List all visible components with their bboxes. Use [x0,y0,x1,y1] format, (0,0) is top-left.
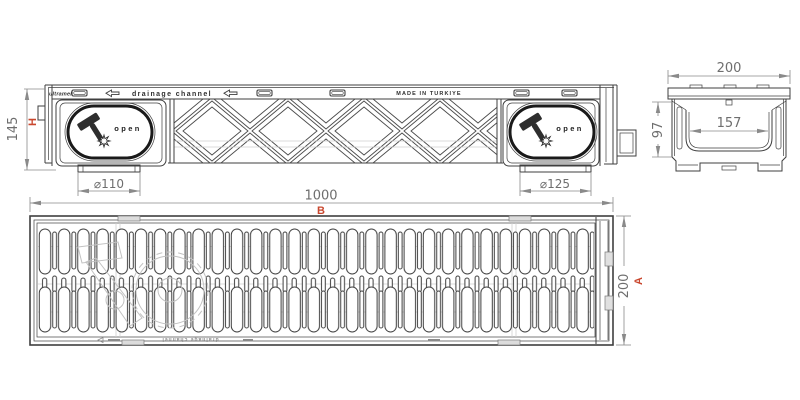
dim-plan-width-letter: A [633,277,645,285]
footer-drainage-label: drainage channel [161,336,218,342]
brand-logo-text: ultramele [49,92,75,98]
right-end-cap [600,85,636,166]
arrow-left-icon [106,90,119,97]
side-elevation-view: ultramele drainage channel MADE IN TURKI… [6,85,636,196]
rail-slot-icon [514,90,529,96]
section-top-flange [668,85,790,99]
burst-icon [540,135,552,147]
end-cap-clip [605,296,613,310]
end-cap-clip [605,252,613,266]
dimension-plan-width: 200 A [616,216,645,345]
technical-drawing-canvas: ultramele drainage channel MADE IN TURKI… [0,0,800,400]
rail-slot-icon [257,90,272,96]
plan-end-cap [596,217,613,344]
lock-module-right: open [503,100,599,166]
rail-slot-icon [562,90,577,96]
dim-height-value: 145 [6,117,21,142]
rail-slot-icon [330,90,345,96]
drainage-channel-label: drainage channel [132,91,212,98]
made-in-label: MADE IN TURKIYE [396,91,461,97]
top-rail: ultramele drainage channel MADE IN TURKI… [45,85,617,99]
rail-slot-icon [72,90,87,96]
dimension-inner-width: 157 [690,116,768,131]
frame-tab [498,340,520,345]
lock-module-left: open [56,100,166,166]
dimension-outlet-left: ⌀110 [78,172,140,196]
dimension-outlet-right: ⌀125 [520,172,591,196]
dimension-section-width: 200 [668,61,790,84]
section-body [672,99,786,171]
grate-slot-pattern [38,223,594,337]
dim-plan-width-value: 200 [617,274,632,299]
dim-section-width-value: 200 [717,61,742,76]
dimension-length: 1000 B [30,189,613,218]
dimension-depth: 97 [651,102,672,157]
frame-tab [122,340,144,345]
dim-inner-width-value: 157 [717,116,742,131]
open-label-left: open [114,124,142,133]
cross-section-view: 200 157 [651,61,790,171]
arrow-left-icon [224,90,237,97]
dim-outlet-right-value: ⌀125 [540,177,570,191]
footer-arrow-icon [98,338,103,343]
burst-icon [98,135,110,147]
frame-tab [509,216,531,221]
dim-height-letter: H [27,118,39,126]
frame-tab [118,216,140,221]
plan-view: 1000 B [30,189,645,346]
dim-length-value: 1000 [304,189,337,204]
open-label-right: open [556,124,584,133]
dim-outlet-left-value: ⌀110 [94,177,124,191]
diamond-lattice-pattern [174,99,497,163]
left-end-tab [38,106,45,120]
dim-depth-value: 97 [651,122,666,139]
